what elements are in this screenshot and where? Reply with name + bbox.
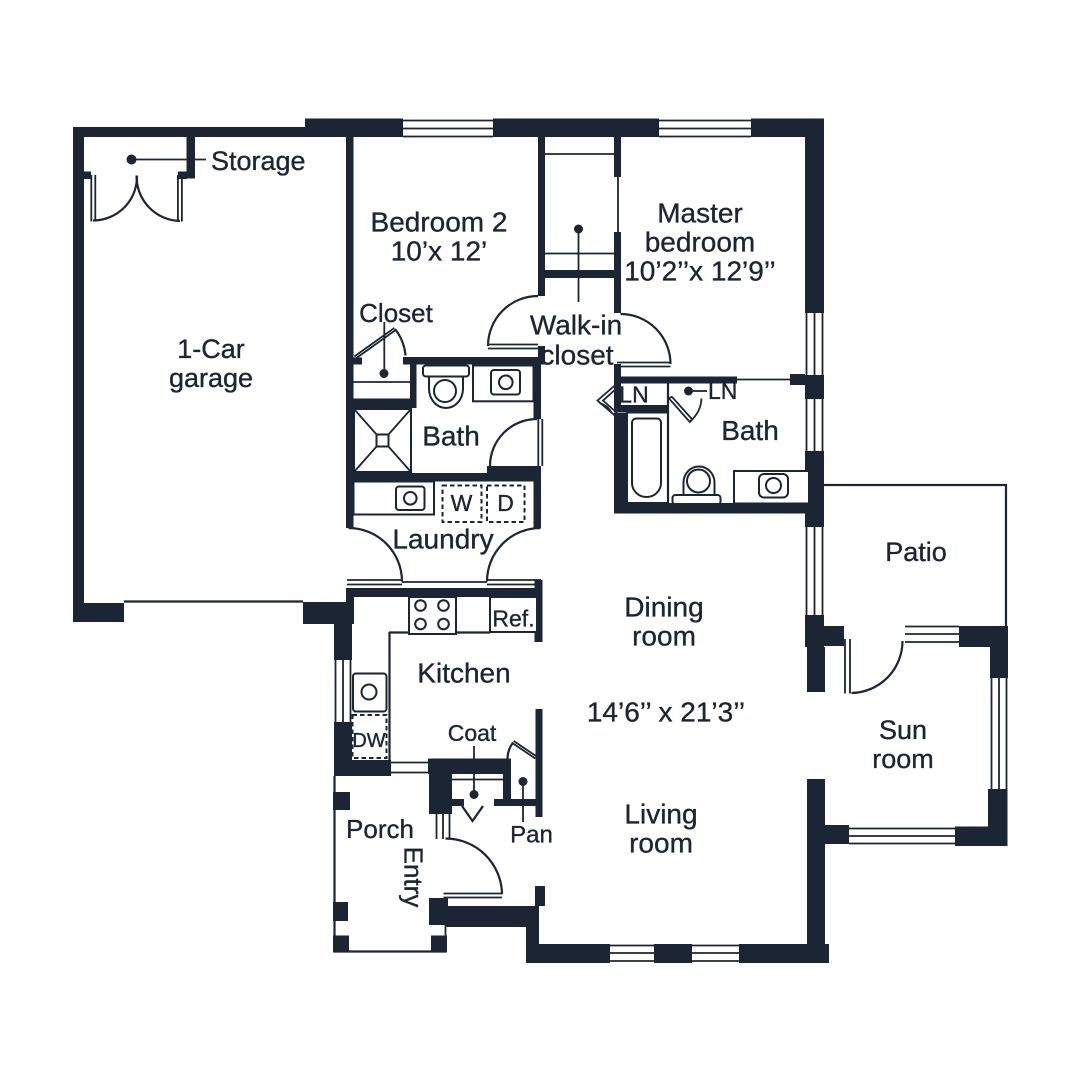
svg-text:14’6’’ x 21’3’’: 14’6’’ x 21’3’’ — [587, 697, 745, 728]
svg-text:room: room — [629, 828, 693, 859]
svg-text:10’2’’x 12’9’’: 10’2’’x 12’9’’ — [624, 256, 776, 287]
svg-text:Patio: Patio — [885, 537, 947, 567]
svg-text:Dining: Dining — [624, 592, 703, 623]
svg-text:room: room — [872, 744, 934, 774]
svg-text:Bath: Bath — [721, 415, 779, 446]
svg-text:DW: DW — [352, 730, 385, 752]
svg-text:Ref.: Ref. — [492, 606, 534, 632]
svg-text:Porch: Porch — [346, 814, 414, 844]
svg-text:Living: Living — [624, 799, 697, 830]
svg-text:Closet: Closet — [359, 298, 433, 328]
svg-text:Entry: Entry — [399, 847, 429, 908]
svg-text:Bedroom 2: Bedroom 2 — [371, 207, 508, 238]
svg-text:bedroom: bedroom — [645, 227, 756, 258]
svg-text:Bath: Bath — [422, 421, 480, 452]
svg-text:Sun: Sun — [879, 715, 927, 745]
svg-text:LN: LN — [708, 378, 737, 404]
svg-text:Walk-in: Walk-in — [530, 310, 622, 341]
svg-text:LN: LN — [619, 382, 648, 408]
svg-text:Master: Master — [657, 198, 743, 229]
svg-text:closet: closet — [540, 340, 613, 371]
svg-text:Storage: Storage — [211, 146, 306, 176]
svg-text:room: room — [632, 621, 696, 652]
svg-text:W: W — [451, 490, 473, 516]
svg-text:Coat: Coat — [448, 720, 497, 746]
svg-text:10’x 12’: 10’x 12’ — [391, 236, 488, 267]
svg-text:Pan: Pan — [510, 822, 553, 849]
svg-text:D: D — [497, 490, 514, 516]
svg-text:1-Car: 1-Car — [177, 334, 245, 364]
svg-text:Kitchen: Kitchen — [417, 658, 510, 689]
svg-text:Laundry: Laundry — [392, 524, 493, 555]
svg-text:garage: garage — [169, 363, 253, 393]
